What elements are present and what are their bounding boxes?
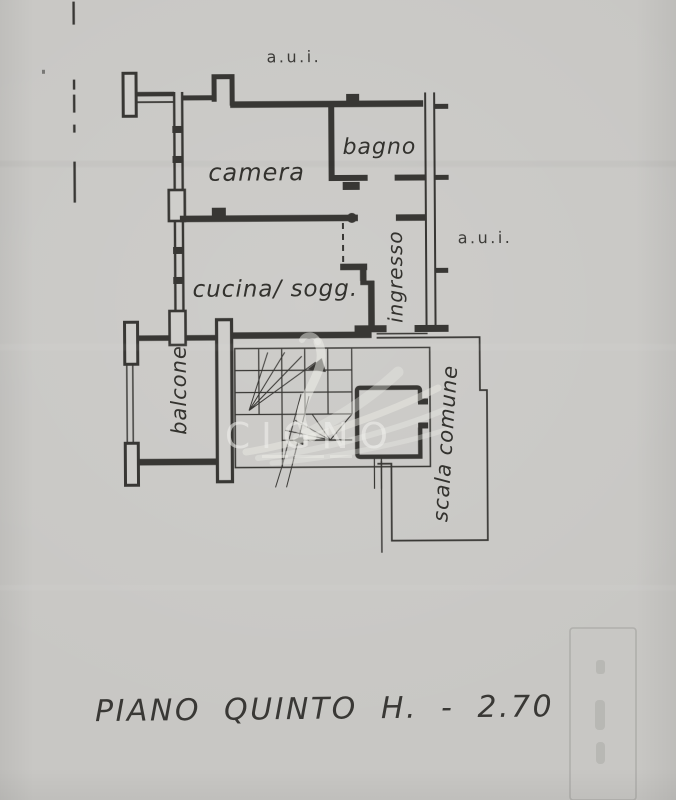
room-label-bagno: bagno — [342, 135, 416, 160]
label-aui-top: a.u.i. — [267, 47, 322, 66]
north-wall — [182, 75, 423, 105]
floor-caption: PIANO QUINTO H. - 2.70 — [95, 689, 555, 729]
label-aui-right: a.u.i. — [458, 228, 513, 247]
room-label-balcone: balcone — [167, 345, 192, 435]
west-wall — [168, 92, 185, 334]
room-label-ingresso: ingresso — [383, 230, 408, 323]
camera-cucina-divider-wall — [180, 207, 358, 264]
room-label-camera: camera — [208, 158, 305, 187]
watermark-tagline-marks — [262, 455, 352, 458]
floor-plan-drawing: CIGNO a.u.i. a.u.i. camera bagno cucina/… — [0, 0, 676, 800]
bleed-through-ghost — [570, 628, 636, 800]
scanned-floor-plan-page: CIGNO a.u.i. a.u.i. camera bagno cucina/… — [0, 0, 676, 800]
watermark-text: CIGNO — [225, 416, 399, 457]
property-boundary-dashed-line — [42, 2, 75, 203]
wall-end-post — [123, 73, 136, 116]
room-label-cucina-soggiorno: cucina/ sogg. — [192, 276, 358, 303]
